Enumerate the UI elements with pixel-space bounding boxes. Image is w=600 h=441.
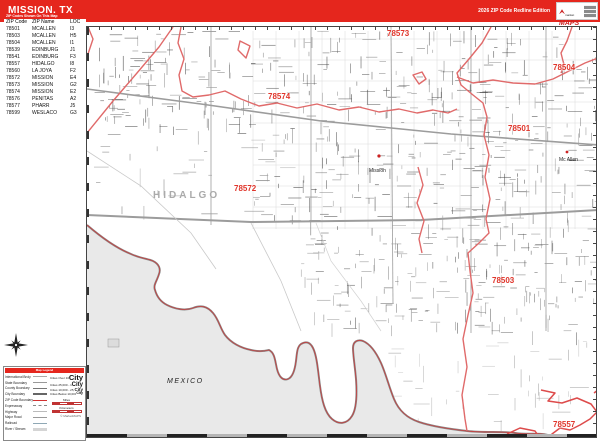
logo-info-box — [584, 5, 596, 18]
map-drawing — [87, 27, 597, 438]
line-sample — [33, 417, 47, 418]
table-row: 78599WESLACOG3 — [4, 110, 86, 117]
marketmaps-logo: market MAPS — [556, 2, 598, 20]
zip-label-78504: 78504 — [553, 63, 575, 72]
line-sample — [33, 428, 47, 431]
table-row: 78560LA JOYAF2 — [4, 68, 86, 75]
legend-city-symbols: Cities Over 100,000City Cities 25,000 - … — [48, 374, 83, 432]
city-point-mission — [377, 154, 380, 157]
zip-table-column-headers: ZIP Code ZIP Name LOC — [4, 19, 86, 26]
title-banner: MISSION, TX 2026 ZIP Code Redline Editio… — [0, 0, 600, 22]
city-point-mcallen — [566, 151, 569, 154]
frame-ticks-right — [593, 27, 596, 437]
legend-city-item: Cities Over 100,000City — [50, 374, 83, 382]
mexico-area — [87, 225, 576, 438]
map-legend: Map Legend International Bndy State Boun… — [3, 366, 86, 441]
table-row: 78504MCALLENI1 — [4, 40, 86, 47]
zip-label-78503: 78503 — [492, 276, 514, 285]
table-row: 78539EDINBURGJ1 — [4, 47, 86, 54]
scale-bar-kilometers: Kilometers — [50, 406, 83, 413]
county-label-hidalgo: HIDALGO — [153, 190, 220, 201]
map-inset-symbol — [108, 339, 119, 347]
city-label-mission: Mission — [369, 168, 386, 174]
map-canvas: 78573 78504 78574 78501 78572 78503 7855… — [86, 26, 597, 438]
line-sample — [33, 423, 47, 424]
legend-item: River / Stream — [5, 426, 48, 432]
zip-boundary-lines-78557 — [507, 390, 597, 438]
page: { "banner": { "title": "MISSION, TX", "e… — [0, 0, 600, 441]
table-row: 78557HIDALGOI8 — [4, 61, 86, 68]
line-sample — [33, 393, 47, 395]
country-label-mexico: MEXICO — [167, 378, 204, 385]
road-network — [87, 27, 597, 333]
table-row: 78574MISSIONE2 — [4, 89, 86, 96]
table-row: 78501MCALLENI3 — [4, 26, 86, 33]
table-row: 78541EDINBURGF3 — [4, 54, 86, 61]
zip-label-78572: 78572 — [234, 184, 256, 193]
zip-code-index-table: ZIP Codes Shown On This Map ZIP Code ZIP… — [4, 13, 86, 117]
frame-ticks-left — [87, 27, 89, 437]
line-sample — [33, 382, 47, 383]
line-sample — [33, 376, 47, 377]
zip-label-78574: 78574 — [268, 92, 290, 101]
edition-label: 2026 ZIP Code Redline Edition — [478, 8, 550, 14]
line-sample — [33, 411, 47, 412]
table-row: 78572MISSIONE4 — [4, 75, 86, 82]
legend-city-item: Cities Below 10,000City — [50, 392, 83, 396]
frame-ticks-top — [87, 27, 596, 30]
frame-ticks-bottom — [87, 434, 596, 437]
line-sample — [33, 405, 47, 406]
scale-bar-miles: Miles — [50, 398, 83, 405]
street-grid — [253, 31, 596, 229]
table-row: 78503MCALLENH5 — [4, 33, 86, 40]
logo-word-top: market — [565, 13, 574, 17]
legend-footer: © MarketMAPS — [50, 414, 83, 418]
zip-label-78573: 78573 — [387, 29, 409, 38]
table-row: 78576PENITASA2 — [4, 96, 86, 103]
table-row: 78573MISSIONG2 — [4, 82, 86, 89]
legend-line-symbols: International Bndy State Boundary County… — [5, 374, 48, 432]
line-sample — [33, 400, 47, 401]
scale-bar — [52, 410, 82, 413]
table-row: 78577PHARRJ5 — [4, 103, 86, 110]
logo-swoosh-icon — [559, 9, 565, 14]
scale-bar — [52, 402, 82, 405]
compass-rose-icon — [3, 330, 29, 365]
zip-label-78557: 78557 — [553, 420, 575, 429]
city-label-mcallen: Mc Allen — [559, 157, 578, 163]
line-sample — [33, 388, 47, 389]
zip-label-78501: 78501 — [508, 124, 530, 133]
